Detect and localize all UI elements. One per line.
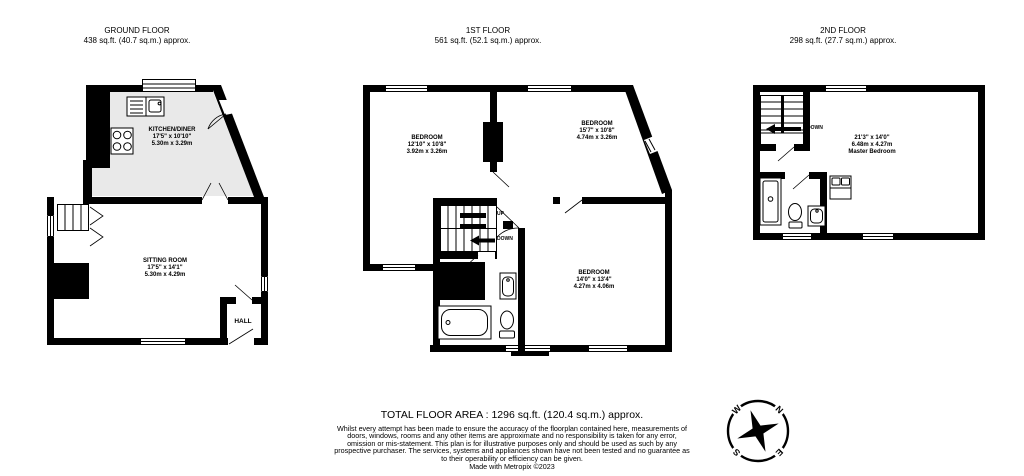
room-name: BEDROOM — [574, 270, 615, 277]
compass-star-icon — [737, 410, 778, 451]
room-dims-imperial: 14'0" x 13'4" — [574, 277, 615, 284]
first-floor-plan — [363, 85, 672, 356]
second-floor-title: 2ND FLOOR — [790, 26, 897, 36]
master-bedroom-label: 21'3" x 14'0" 6.48m x 4.27m Master Bedro… — [848, 135, 895, 156]
room-name: HALL — [234, 318, 251, 325]
room-name: BEDROOM — [577, 121, 618, 128]
room-dims-metric: 4.27m x 4.06m — [574, 284, 615, 291]
room-dims-imperial: 15'7" x 10'8" — [577, 128, 618, 135]
ground-floor-header: GROUND FLOOR 438 sq.ft. (40.7 sq.m.) app… — [84, 26, 191, 46]
hall-label: HALL — [234, 318, 251, 325]
disclaimer-text: Whilst every attempt has been made to en… — [333, 425, 691, 462]
window-icon — [142, 80, 196, 92]
first-floor-area: 561 sq.ft. (52.1 sq.m.) approx. — [435, 36, 542, 46]
ground-floor-area: 438 sq.ft. (40.7 sq.m.) approx. — [84, 36, 191, 46]
metropix-credit: Made with Metropix ©2023 — [469, 462, 555, 471]
room-dims-metric: 3.92m x 3.26m — [407, 149, 448, 156]
room-dims-metric: 6.48m x 4.27m — [848, 142, 895, 149]
room-dims-imperial: 21'3" x 14'0" — [848, 135, 895, 142]
room-dims-imperial: 12'10" x 10'8" — [407, 142, 448, 149]
kitchen-diner-label: KITCHEN/DINER 17'5" x 10'10" 5.30m x 3.2… — [148, 127, 195, 148]
toilet-icon — [789, 204, 803, 229]
stairs-down-label: DOWN — [497, 237, 513, 242]
washbasin-icon — [808, 206, 825, 226]
total-floor-area: TOTAL FLOOR AREA : 1296 sq.ft. (120.4 sq… — [381, 409, 643, 421]
bathtub-icon — [438, 306, 491, 339]
toilet-icon — [500, 311, 515, 338]
sitting-room-label: SITTING ROOM 17'5" x 14'1" 5.30m x 4.29m — [143, 258, 187, 279]
first-floor-title: 1ST FLOOR — [435, 26, 542, 36]
stairs-down-label: DOWN — [807, 126, 823, 131]
shower-icon — [760, 178, 781, 225]
bedroom-front-label: BEDROOM 12'10" x 10'8" 3.92m x 3.26m — [407, 135, 448, 156]
stairs-up-label: UP — [497, 212, 504, 217]
ground-floor-plan — [47, 80, 268, 346]
room-name: KITCHEN/DINER — [148, 127, 195, 134]
staircase-icon — [761, 95, 805, 147]
room-dims-metric: 5.30m x 4.29m — [143, 272, 187, 279]
washbasin-icon — [500, 273, 516, 299]
second-floor-area: 298 sq.ft. (27.7 sq.m.) approx. — [790, 36, 897, 46]
bedroom-middle-label: BEDROOM 15'7" x 10'8" 4.74m x 3.26m — [577, 121, 618, 142]
hob-icon — [111, 128, 133, 154]
floorplan-document: GROUND FLOOR 438 sq.ft. (40.7 sq.m.) app… — [0, 0, 1024, 476]
first-floor-header: 1ST FLOOR 561 sq.ft. (52.1 sq.m.) approx… — [435, 26, 542, 46]
ground-floor-title: GROUND FLOOR — [84, 26, 191, 36]
bedroom-rear-label: BEDROOM 14'0" x 13'4" 4.27m x 4.06m — [574, 270, 615, 291]
room-name: Master Bedroom — [848, 149, 895, 156]
room-dims-imperial: 17'5" x 14'1" — [143, 265, 187, 272]
second-floor-plan — [753, 85, 985, 240]
staircase-icon — [58, 205, 89, 231]
room-name: SITTING ROOM — [143, 258, 187, 265]
room-dims-imperial: 17'5" x 10'10" — [148, 134, 195, 141]
sink-icon — [127, 97, 164, 116]
room-name: BEDROOM — [407, 135, 448, 142]
bed-icon — [830, 176, 851, 199]
room-dims-metric: 5.30m x 3.29m — [148, 141, 195, 148]
staircase-icon — [441, 206, 497, 252]
room-dims-metric: 4.74m x 3.26m — [577, 135, 618, 142]
second-floor-header: 2ND FLOOR 298 sq.ft. (27.7 sq.m.) approx… — [790, 26, 897, 46]
